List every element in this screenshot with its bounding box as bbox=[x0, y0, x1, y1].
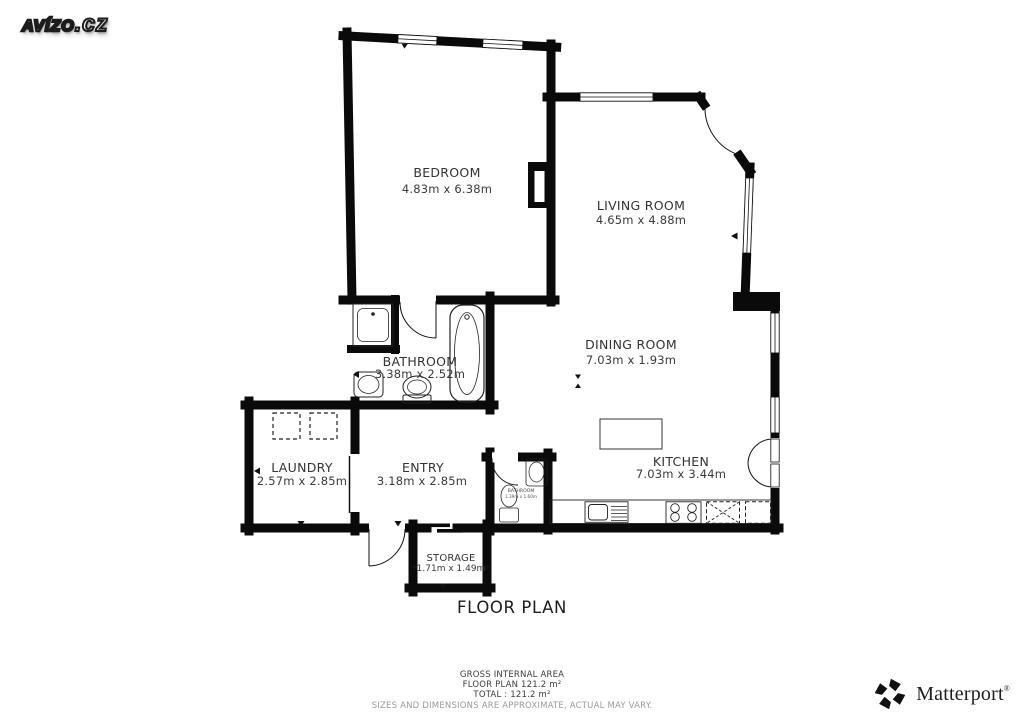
dining-room-dims: 7.03m x 1.93m bbox=[586, 353, 676, 367]
dining-window bbox=[771, 313, 779, 353]
bathroom-door bbox=[400, 300, 436, 338]
wc-dims: 1.39m x 1.60m bbox=[505, 494, 537, 499]
floor-plan-area-line: FLOOR PLAN 121.2 m² bbox=[0, 680, 1024, 690]
kitchen-window bbox=[771, 397, 779, 433]
matterport-wordmark: Matterport® bbox=[916, 683, 1010, 706]
dishwasher-icon bbox=[707, 502, 740, 524]
stove-icon bbox=[666, 502, 701, 524]
kitchen-counter bbox=[550, 500, 771, 524]
living-diagonal-door bbox=[705, 105, 739, 155]
storage-label: STORAGE bbox=[426, 553, 475, 564]
living-room-dims: 4.65m x 4.88m bbox=[596, 213, 686, 227]
entry-opening bbox=[486, 410, 495, 452]
area-summary: GROSS INTERNAL AREA FLOOR PLAN 121.2 m² … bbox=[0, 670, 1024, 711]
dimension-arrows bbox=[254, 233, 738, 590]
total-area-line: TOTAL : 121.2 m² bbox=[0, 690, 1024, 700]
matterport-logo: Matterport® bbox=[872, 674, 1010, 714]
bedroom-label: BEDROOM bbox=[413, 165, 480, 180]
dining-room-label: DINING ROOM bbox=[585, 337, 677, 352]
dimension-tick bbox=[401, 44, 407, 49]
living-room-window bbox=[580, 93, 653, 101]
matterport-wordmark-text: Matterport bbox=[916, 683, 1004, 705]
wc-door bbox=[492, 457, 518, 486]
bathroom-dims: 3.38m x 2.52m bbox=[375, 367, 465, 381]
kitchen-dims: 7.03m x 3.44m bbox=[636, 467, 726, 481]
entry-front-door bbox=[369, 528, 405, 566]
laundry-label: LAUNDRY bbox=[271, 460, 333, 475]
bedroom-window-1 bbox=[398, 35, 437, 45]
bedroom-dims: 4.83m x 6.38m bbox=[402, 182, 492, 196]
dryer-icon bbox=[310, 413, 337, 439]
washer-icon bbox=[273, 413, 300, 439]
kitchen-double-door bbox=[748, 438, 779, 488]
kitchen-sink-icon bbox=[585, 502, 628, 523]
registered-mark: ® bbox=[1004, 684, 1010, 693]
shower-icon bbox=[353, 304, 393, 346]
dining-table bbox=[600, 419, 662, 449]
floorplan-page: { "brand": { "name": "AVÍZO", "suffix": … bbox=[0, 0, 1024, 724]
laundry-dims: 2.57m x 2.85m bbox=[257, 474, 347, 488]
gross-internal-area-heading: GROSS INTERNAL AREA bbox=[0, 670, 1024, 680]
bedroom-top-wall bbox=[342, 32, 556, 57]
fridge-icon bbox=[746, 502, 771, 524]
dimensions-disclaimer: SIZES AND DIMENSIONS ARE APPROXIMATE, AC… bbox=[0, 701, 1024, 711]
storage-dims: 1.71m x 1.49m bbox=[417, 564, 486, 574]
entry-dims: 3.18m x 2.85m bbox=[377, 474, 467, 488]
matterport-icon bbox=[872, 676, 908, 712]
laundry-sliding-door bbox=[350, 454, 356, 513]
entry-label: ENTRY bbox=[402, 460, 444, 475]
living-step-wall bbox=[733, 292, 780, 311]
living-right-window bbox=[743, 178, 753, 253]
living-room-label: LIVING ROOM bbox=[597, 198, 685, 213]
bedroom-door-leaf bbox=[535, 171, 545, 202]
floor-plan-title: FLOOR PLAN bbox=[0, 598, 1024, 617]
bedroom-window-2 bbox=[483, 39, 523, 50]
